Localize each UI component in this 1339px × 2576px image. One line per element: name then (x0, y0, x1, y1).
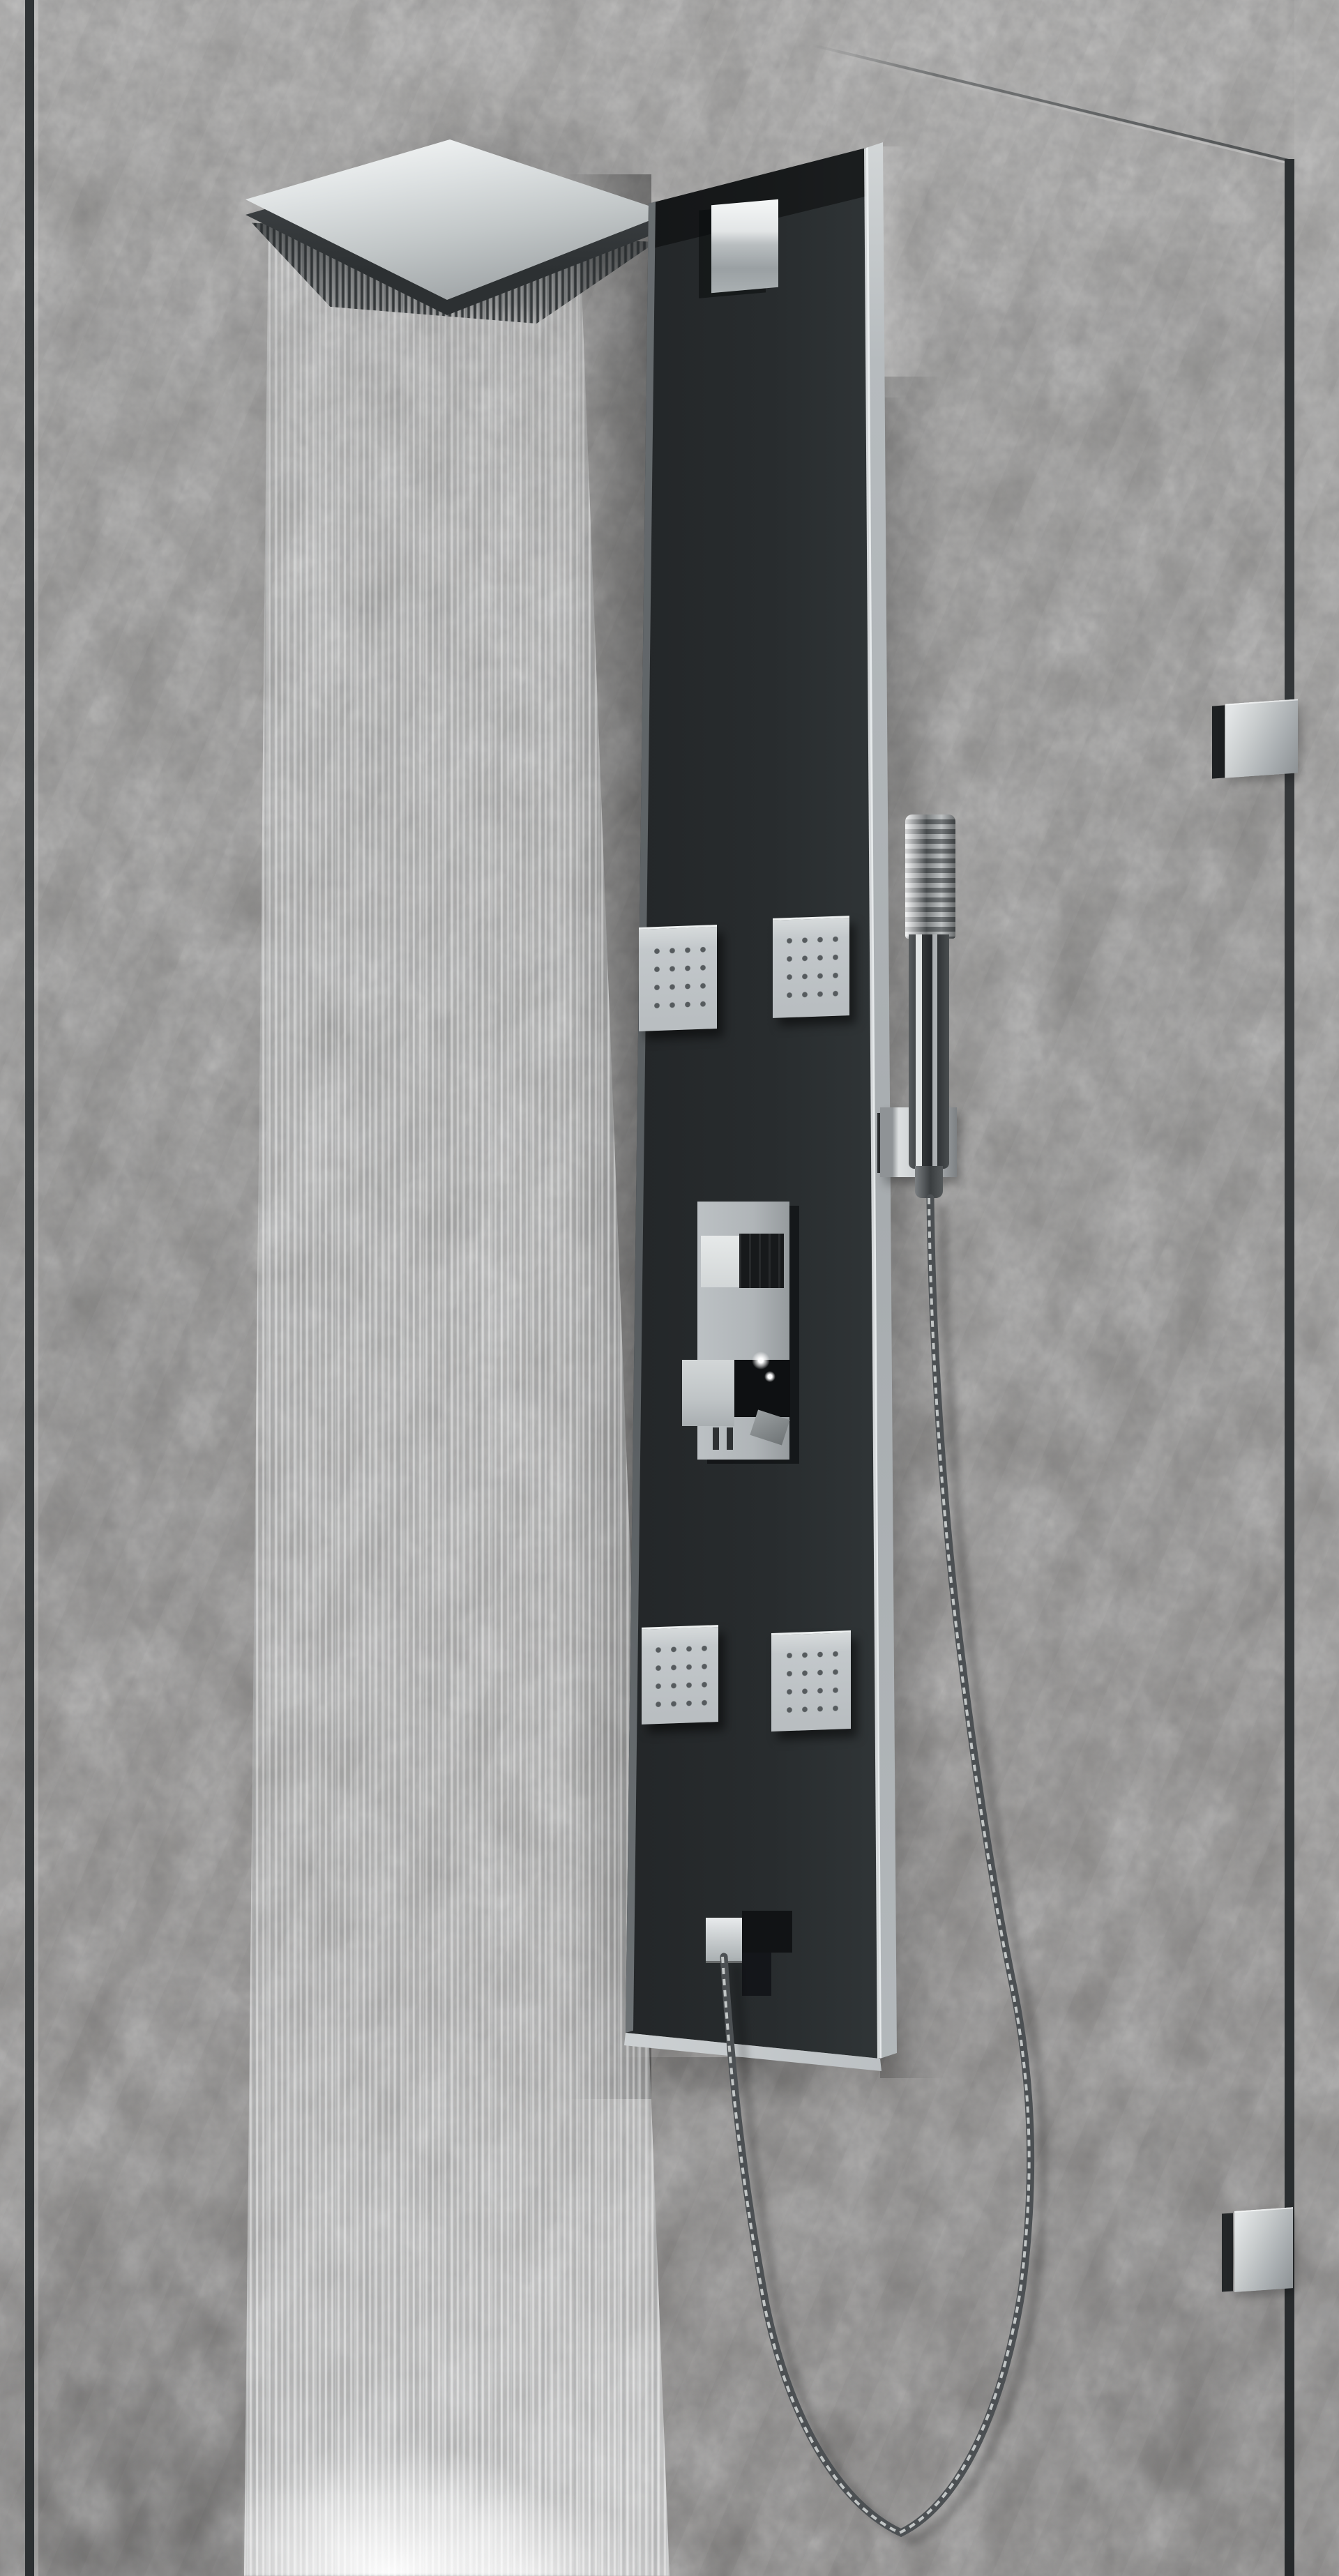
water-splash (244, 2420, 704, 2576)
shower-hose (0, 0, 1339, 2576)
shower-product-photo (0, 0, 1339, 2576)
